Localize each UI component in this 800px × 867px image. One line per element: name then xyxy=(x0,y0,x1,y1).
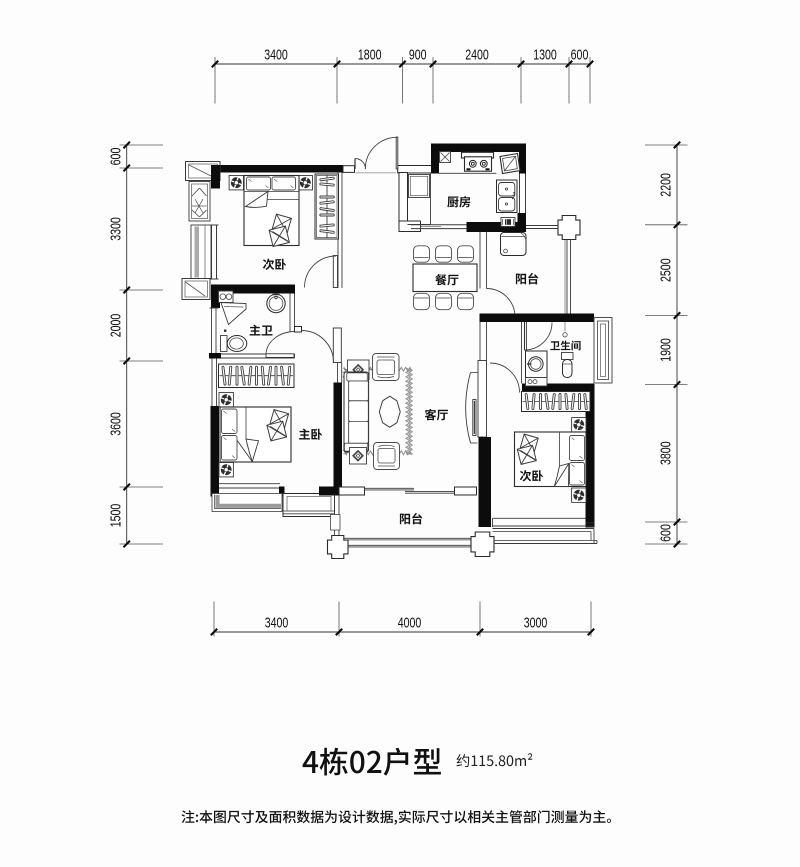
svg-text:2400: 2400 xyxy=(465,47,489,64)
svg-text:3400: 3400 xyxy=(264,47,288,64)
svg-text:4000: 4000 xyxy=(398,615,422,632)
svg-text:900: 900 xyxy=(409,47,427,64)
svg-text:3400: 3400 xyxy=(265,615,289,632)
svg-text:600: 600 xyxy=(658,524,675,542)
svg-text:1500: 1500 xyxy=(108,504,125,528)
svg-text:1800: 1800 xyxy=(358,47,382,64)
svg-text:3300: 3300 xyxy=(108,217,125,241)
svg-text:600: 600 xyxy=(571,47,589,64)
svg-text:1900: 1900 xyxy=(658,338,675,362)
svg-text:3800: 3800 xyxy=(658,441,675,465)
svg-text:3000: 3000 xyxy=(524,615,548,632)
svg-text:1300: 1300 xyxy=(533,47,557,64)
svg-text:600: 600 xyxy=(108,148,125,166)
svg-text:2200: 2200 xyxy=(658,173,675,197)
svg-text:3600: 3600 xyxy=(108,412,125,436)
svg-text:2000: 2000 xyxy=(108,314,125,338)
svg-text:2500: 2500 xyxy=(658,258,675,282)
